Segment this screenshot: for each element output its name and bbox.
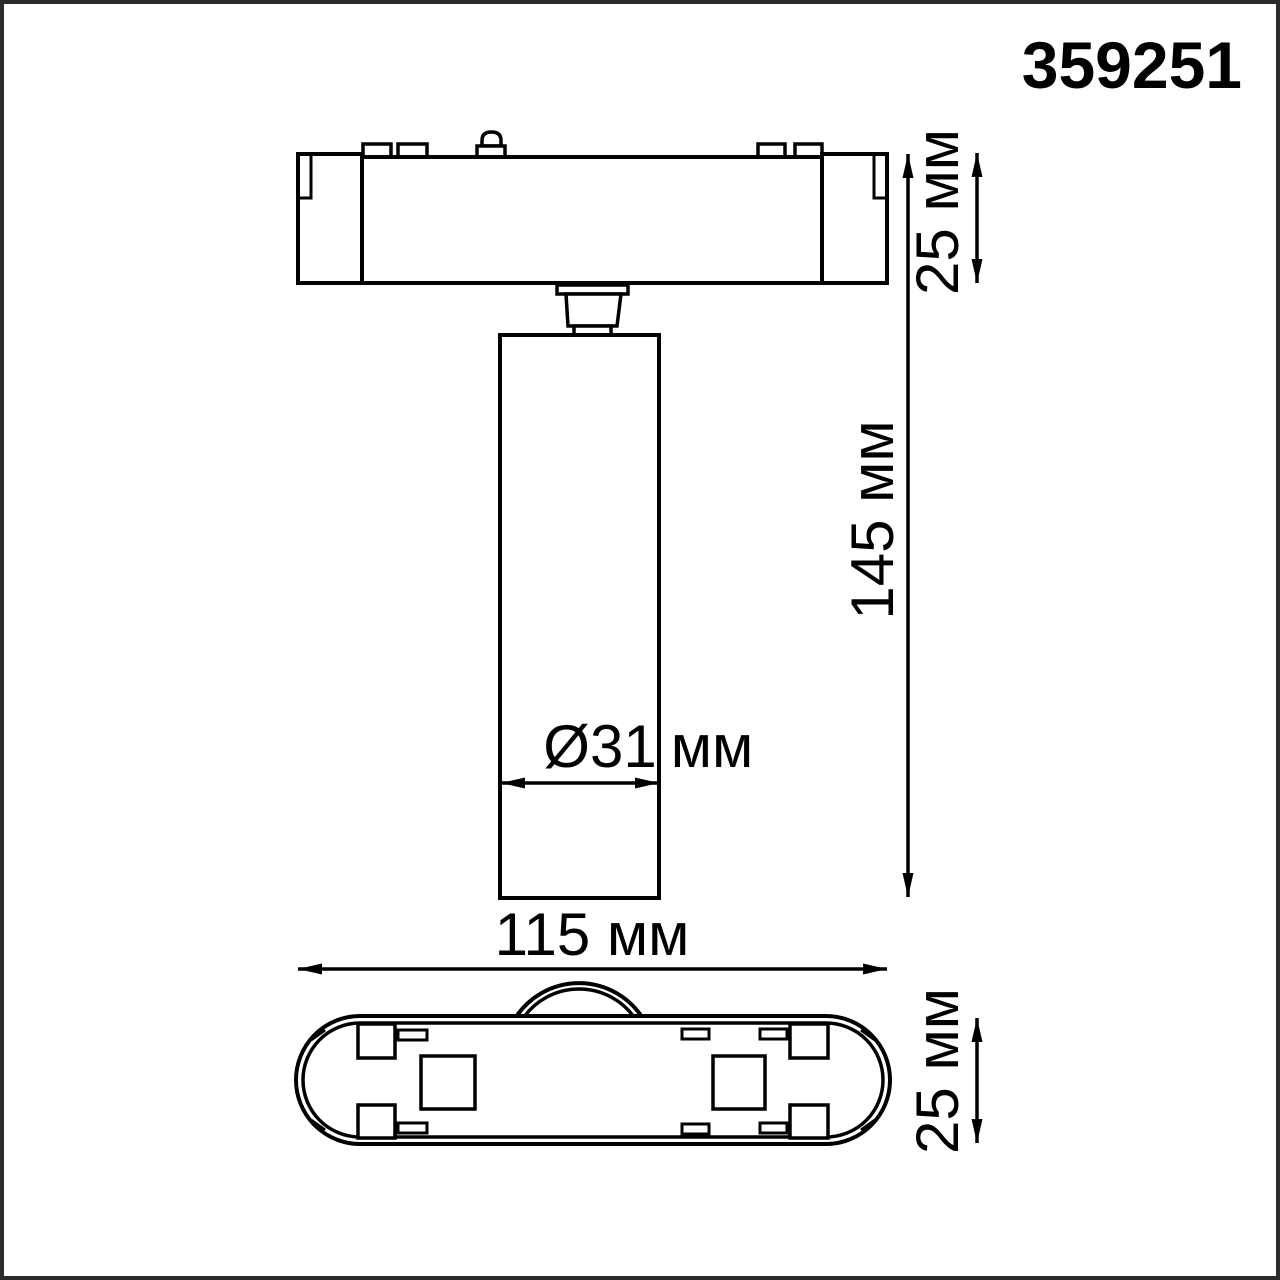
drawing-page: 359251: [0, 0, 1280, 1280]
spotlight-cylinder: [500, 335, 659, 898]
contact-slot: [398, 1030, 427, 1040]
dimension-unit-label: мм: [671, 713, 754, 780]
contact-slot: [398, 1123, 427, 1133]
dimension-label: 115 мм: [495, 901, 690, 968]
magnet-pad: [713, 1056, 765, 1109]
dimension-label: 25 мм: [904, 988, 971, 1154]
stem-block: [566, 294, 621, 326]
corner-pad: [358, 1024, 395, 1058]
corner-pad: [790, 1024, 828, 1058]
contact-slot: [760, 1123, 787, 1133]
lock-button-dome: [482, 132, 501, 146]
dimension-overall-width: 115 мм: [298, 901, 887, 969]
adapter-body: [298, 154, 887, 283]
contact-slot: [682, 1124, 709, 1134]
dimension-label: 25 мм: [904, 129, 971, 295]
dimension-base-height: 25 мм: [904, 129, 977, 295]
bottom-view: [296, 983, 890, 1144]
technical-drawing: 359251: [0, 0, 1280, 1280]
corner-pad: [358, 1105, 395, 1138]
contact-slot: [760, 1029, 787, 1039]
track-adapter: [298, 132, 887, 283]
dimension-label: Ø31: [543, 713, 656, 780]
product-code: 359251: [1022, 28, 1242, 102]
dimension-base-depth: 25 мм: [904, 988, 977, 1154]
swivel-stem: [557, 285, 628, 335]
dimension-label: 145 мм: [839, 420, 906, 619]
magnet-pad: [421, 1056, 475, 1109]
contact-slot: [682, 1029, 709, 1039]
corner-pad: [790, 1105, 828, 1138]
